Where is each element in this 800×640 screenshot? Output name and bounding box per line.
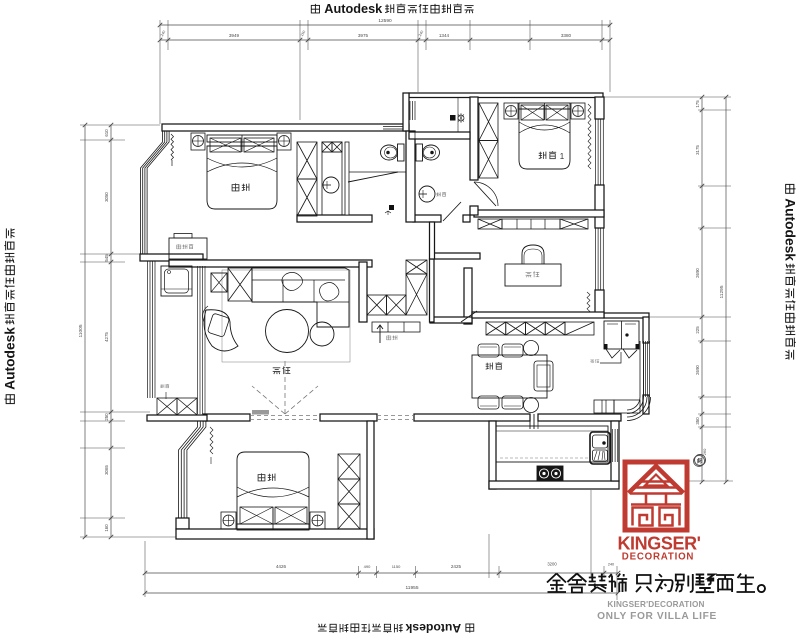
svg-text:Autodesk: Autodesk xyxy=(324,1,383,16)
svg-text:2425: 2425 xyxy=(451,564,462,569)
svg-text:2690: 2690 xyxy=(695,268,700,278)
svg-text:610: 610 xyxy=(104,129,109,137)
svg-text:3200: 3200 xyxy=(547,562,557,567)
svg-text:175: 175 xyxy=(695,100,700,108)
svg-text:DECORATION: DECORATION xyxy=(622,552,694,563)
svg-text:4426: 4426 xyxy=(276,564,287,569)
svg-text:225: 225 xyxy=(695,326,700,334)
svg-text:ONLY FOR VILLA LIFE: ONLY FOR VILLA LIFE xyxy=(597,611,717,622)
svg-text:12590: 12590 xyxy=(378,18,392,24)
svg-text:1344: 1344 xyxy=(439,33,450,38)
svg-text:260: 260 xyxy=(702,448,707,455)
svg-text:1150: 1150 xyxy=(392,564,401,569)
svg-text:11005: 11005 xyxy=(78,324,84,337)
svg-text:350: 350 xyxy=(695,417,700,425)
svg-text:240: 240 xyxy=(608,563,614,567)
svg-text:3380: 3380 xyxy=(561,33,572,38)
svg-text:545: 545 xyxy=(104,254,109,262)
svg-text:KINGSER'DECORATION: KINGSER'DECORATION xyxy=(607,600,704,609)
svg-text:KINGSER': KINGSER' xyxy=(617,534,700,554)
svg-text:3065: 3065 xyxy=(104,465,109,475)
svg-text:1: 1 xyxy=(560,152,565,161)
svg-text:2690: 2690 xyxy=(695,365,700,375)
svg-text:Autodesk: Autodesk xyxy=(2,327,17,390)
svg-text:11295: 11295 xyxy=(719,285,725,298)
svg-text:3050: 3050 xyxy=(104,192,109,202)
svg-text:160: 160 xyxy=(104,524,109,532)
svg-text:Autodesk: Autodesk xyxy=(783,198,798,261)
svg-text:11955: 11955 xyxy=(406,585,419,591)
svg-text:490: 490 xyxy=(364,564,371,569)
svg-text:R: R xyxy=(697,458,702,465)
svg-text:4275: 4275 xyxy=(104,332,109,342)
svg-text:3949: 3949 xyxy=(229,33,240,38)
svg-text:Autodesk: Autodesk xyxy=(405,621,461,635)
svg-text:3175: 3175 xyxy=(695,145,700,155)
svg-text:250: 250 xyxy=(104,413,109,421)
svg-text:3975: 3975 xyxy=(358,33,369,38)
